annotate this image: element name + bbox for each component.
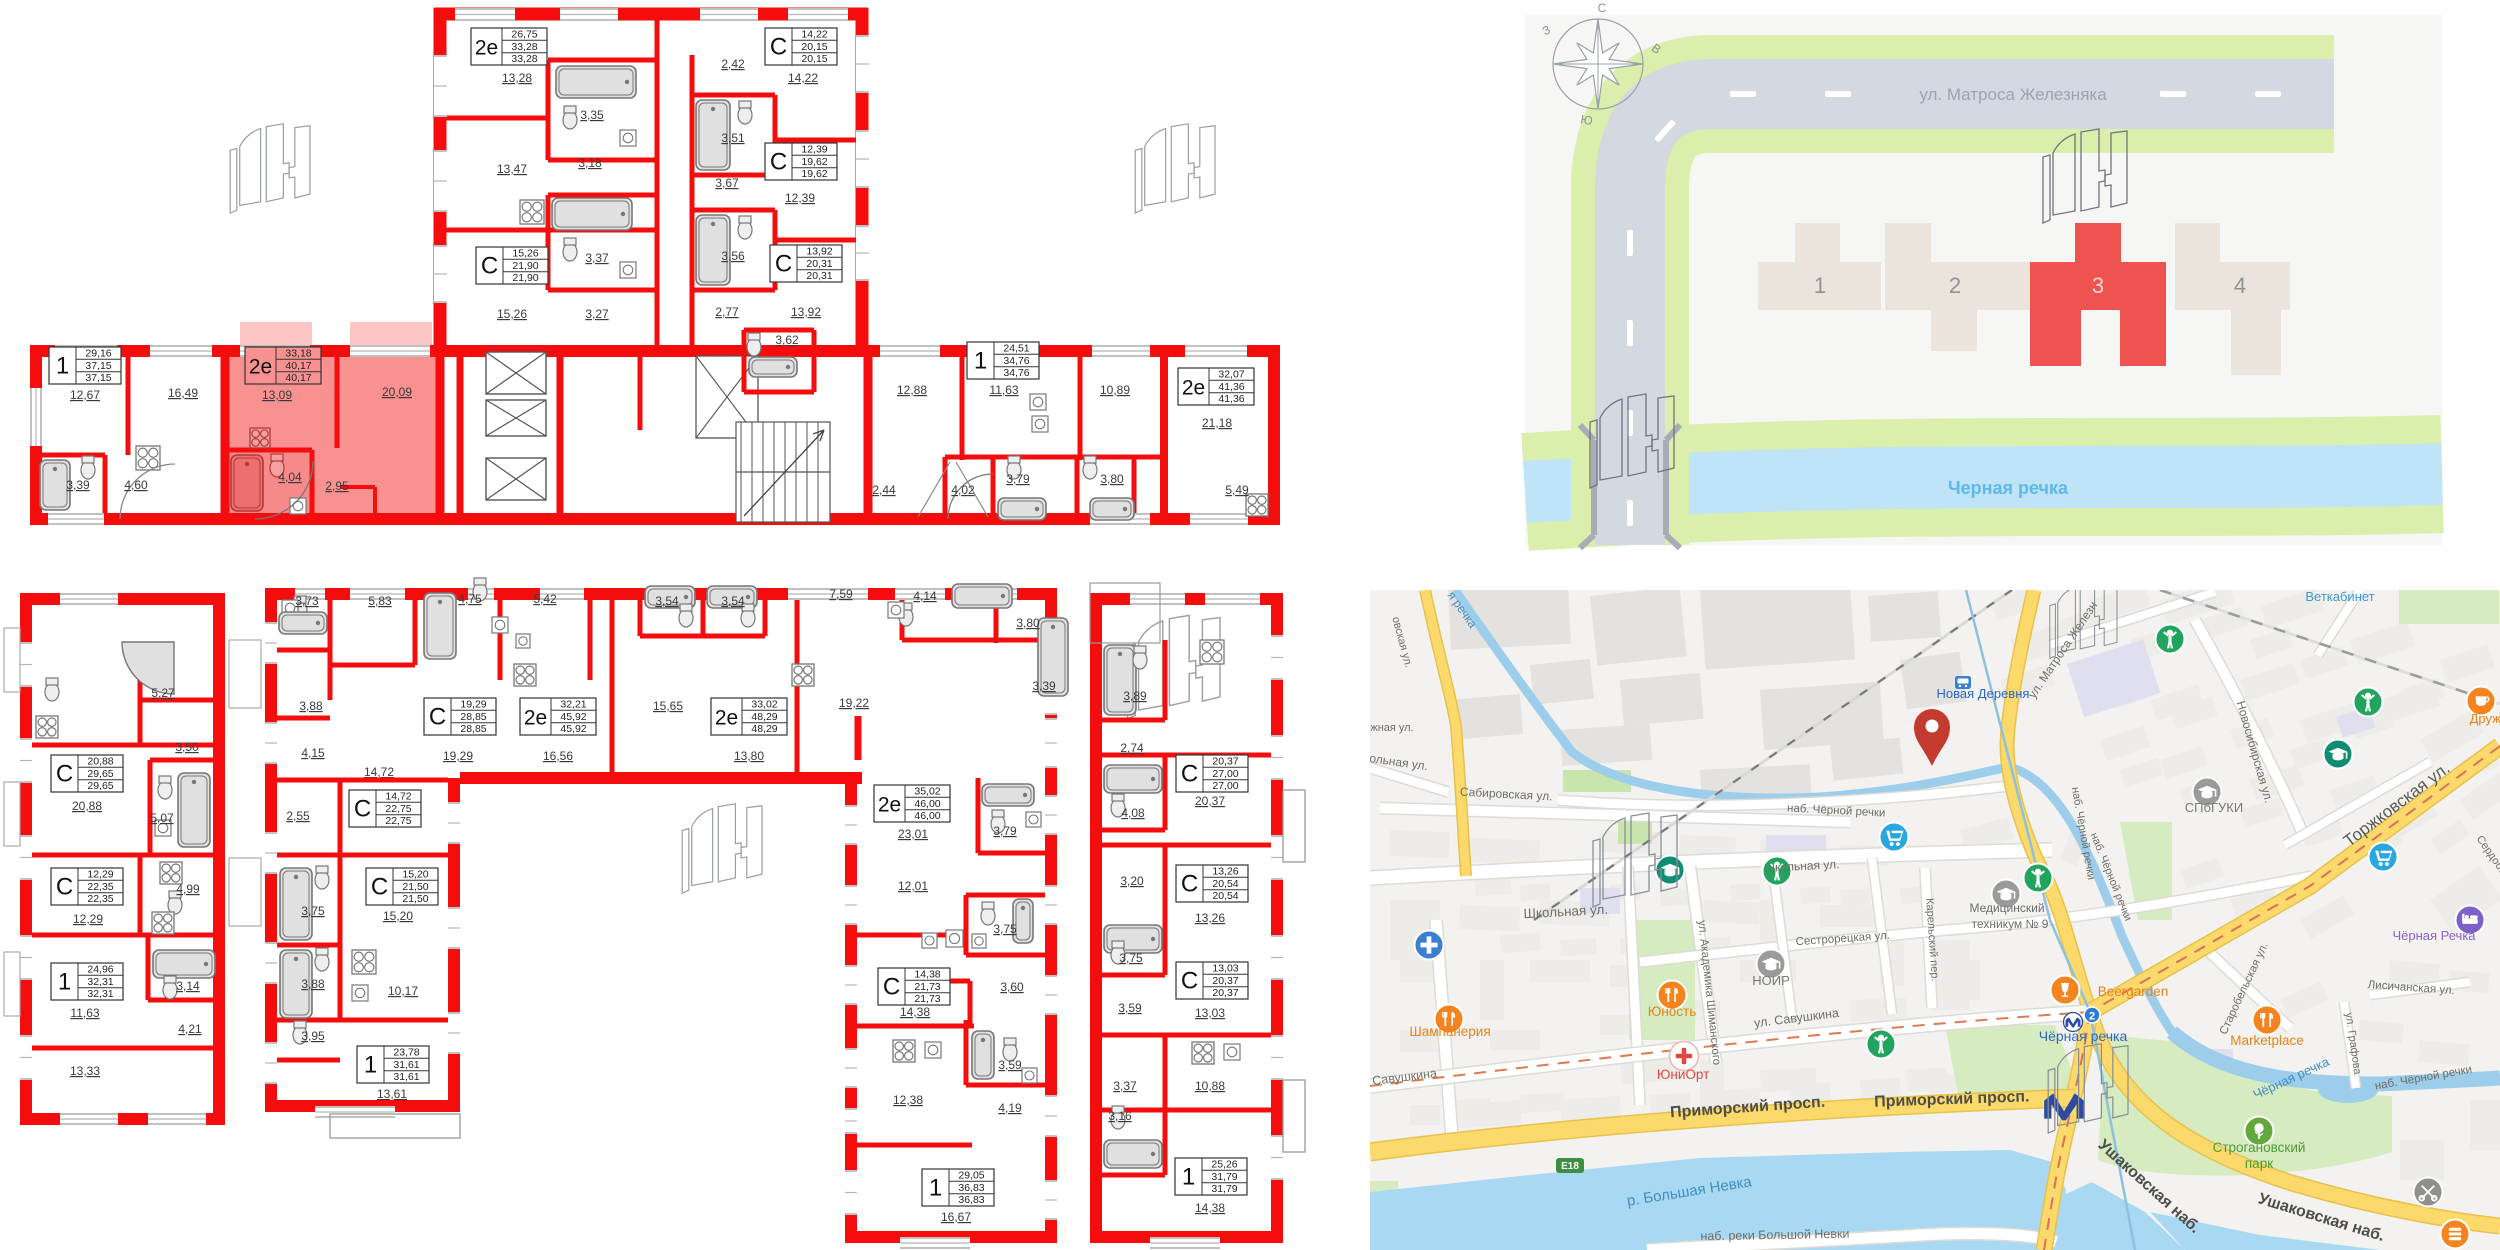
svg-text:НОИР: НОИР — [1752, 973, 1790, 988]
svg-text:жная ул.: жная ул. — [1370, 722, 1413, 734]
svg-text:3,59: 3,59 — [998, 1058, 1022, 1072]
svg-text:21,73: 21,73 — [914, 981, 940, 993]
svg-text:21,50: 21,50 — [402, 893, 428, 905]
svg-text:13,28: 13,28 — [502, 71, 532, 85]
svg-text:31,61: 31,61 — [393, 1059, 419, 1071]
svg-text:3,39: 3,39 — [1032, 679, 1056, 693]
svg-text:37,15: 37,15 — [85, 372, 111, 384]
svg-text:13,26: 13,26 — [1195, 911, 1225, 925]
svg-text:3,62: 3,62 — [775, 333, 799, 347]
svg-text:5,83: 5,83 — [368, 594, 392, 608]
svg-text:E18: E18 — [1561, 1161, 1579, 1172]
svg-text:20,88: 20,88 — [87, 756, 113, 768]
svg-text:Строгановский: Строгановский — [2213, 1140, 2306, 1155]
svg-text:29,16: 29,16 — [85, 348, 111, 360]
svg-text:15,26: 15,26 — [497, 307, 527, 321]
svg-text:С: С — [775, 251, 792, 278]
svg-text:1: 1 — [1814, 273, 1826, 298]
svg-text:19,62: 19,62 — [801, 156, 827, 168]
svg-text:40,17: 40,17 — [285, 360, 311, 372]
svg-text:22,75: 22,75 — [385, 803, 411, 815]
svg-text:3,79: 3,79 — [1006, 472, 1030, 486]
svg-text:ул. Матроса Железняка: ул. Матроса Железняка — [1919, 85, 2107, 104]
svg-text:3,27: 3,27 — [585, 307, 609, 321]
svg-text:Новая Деревня: Новая Деревня — [1937, 686, 2030, 701]
svg-text:19,29: 19,29 — [443, 749, 473, 763]
svg-text:1: 1 — [56, 353, 69, 380]
svg-text:наб. реки Большой Невки: наб. реки Большой Невки — [1700, 1227, 1849, 1244]
svg-text:21,73: 21,73 — [914, 993, 940, 1005]
svg-text:Чёрная Речка: Чёрная Речка — [2392, 928, 2476, 943]
svg-text:13,33: 13,33 — [70, 1064, 100, 1078]
svg-text:2е: 2е — [715, 707, 738, 730]
svg-text:22,35: 22,35 — [87, 881, 113, 893]
svg-text:5,27: 5,27 — [151, 686, 175, 700]
svg-text:19,62: 19,62 — [801, 168, 827, 180]
svg-text:Черная речка: Черная речка — [1948, 478, 2069, 498]
svg-text:10,89: 10,89 — [1100, 383, 1130, 397]
svg-text:3,59: 3,59 — [1118, 1001, 1142, 1015]
svg-text:34,76: 34,76 — [1003, 355, 1029, 367]
svg-text:3,80: 3,80 — [1100, 472, 1124, 486]
svg-text:3,39: 3,39 — [66, 478, 90, 492]
svg-text:3,60: 3,60 — [1000, 980, 1024, 994]
svg-text:34,76: 34,76 — [1003, 367, 1029, 379]
svg-text:31,61: 31,61 — [393, 1071, 419, 1083]
svg-text:41,36: 41,36 — [1218, 381, 1244, 393]
svg-text:3,75: 3,75 — [993, 922, 1017, 936]
svg-text:32,31: 32,31 — [87, 976, 113, 988]
svg-text:С: С — [56, 874, 73, 901]
svg-text:12,67: 12,67 — [70, 388, 100, 402]
svg-text:4,15: 4,15 — [301, 746, 325, 760]
svg-text:26,75: 26,75 — [511, 29, 537, 41]
svg-text:2,44: 2,44 — [872, 483, 896, 497]
svg-text:10,17: 10,17 — [388, 984, 418, 998]
svg-text:15,20: 15,20 — [402, 869, 428, 881]
svg-text:1: 1 — [1182, 1164, 1195, 1191]
svg-text:36,83: 36,83 — [958, 1182, 984, 1194]
svg-text:5,42: 5,42 — [533, 592, 557, 606]
svg-text:27,00: 27,00 — [1212, 780, 1238, 792]
svg-text:21,18: 21,18 — [1202, 416, 1232, 430]
svg-text:2е: 2е — [524, 707, 547, 730]
svg-text:4,19: 4,19 — [998, 1101, 1022, 1115]
svg-text:36,83: 36,83 — [958, 1194, 984, 1206]
svg-text:3,14: 3,14 — [176, 979, 200, 993]
svg-text:4,99: 4,99 — [176, 882, 200, 896]
svg-text:20,37: 20,37 — [1195, 794, 1225, 808]
svg-text:20,54: 20,54 — [1212, 890, 1238, 902]
svg-text:29,65: 29,65 — [87, 780, 113, 792]
svg-text:С: С — [770, 149, 787, 176]
svg-text:12,01: 12,01 — [898, 879, 928, 893]
svg-text:3,75: 3,75 — [301, 904, 325, 918]
svg-text:3,18: 3,18 — [578, 156, 602, 170]
svg-text:3,89: 3,89 — [1123, 689, 1147, 703]
svg-text:22,75: 22,75 — [385, 815, 411, 827]
svg-text:Веткабинет: Веткабинет — [2305, 589, 2374, 604]
svg-text:Чёрная речка: Чёрная речка — [2039, 1028, 2128, 1044]
svg-text:13,61: 13,61 — [377, 1087, 407, 1101]
svg-text:23,01: 23,01 — [898, 827, 928, 841]
svg-text:31,79: 31,79 — [1211, 1183, 1237, 1195]
svg-text:16,56: 16,56 — [543, 749, 573, 763]
svg-text:2е: 2е — [878, 794, 901, 817]
svg-text:3,51: 3,51 — [721, 131, 745, 145]
svg-text:16,49: 16,49 — [168, 386, 198, 400]
svg-text:2е: 2е — [249, 356, 272, 379]
svg-text:14,72: 14,72 — [385, 791, 411, 803]
svg-text:25,26: 25,26 — [1211, 1159, 1237, 1171]
svg-text:13,92: 13,92 — [806, 246, 832, 258]
svg-text:1: 1 — [364, 1052, 377, 1079]
svg-text:12,39: 12,39 — [785, 191, 815, 205]
svg-text:Beergarden: Beergarden — [2098, 984, 2169, 999]
svg-text:С: С — [354, 796, 371, 823]
svg-text:3,80: 3,80 — [1016, 616, 1040, 630]
svg-text:Дружб: Дружб — [2470, 711, 2500, 726]
svg-text:46,00: 46,00 — [914, 798, 940, 810]
svg-text:14,38: 14,38 — [900, 1005, 930, 1019]
svg-text:С: С — [883, 974, 900, 1001]
svg-text:13,47: 13,47 — [497, 162, 527, 176]
svg-text:20,37: 20,37 — [1212, 987, 1238, 999]
svg-text:Marketplace: Marketplace — [2230, 1033, 2304, 1048]
svg-text:14,22: 14,22 — [788, 71, 818, 85]
svg-text:41,36: 41,36 — [1218, 393, 1244, 405]
svg-text:20,37: 20,37 — [1212, 975, 1238, 987]
svg-text:С: С — [1181, 968, 1198, 995]
svg-text:3,37: 3,37 — [1113, 1079, 1137, 1093]
svg-text:3,56: 3,56 — [721, 249, 745, 263]
svg-text:4,02: 4,02 — [951, 483, 975, 497]
svg-text:12,39: 12,39 — [801, 144, 827, 156]
svg-text:3,50: 3,50 — [175, 740, 199, 754]
svg-text:С: С — [1181, 761, 1198, 788]
svg-text:14,72: 14,72 — [364, 765, 394, 779]
svg-text:20,37: 20,37 — [1212, 756, 1238, 768]
svg-text:Ю: Ю — [1580, 112, 1594, 128]
svg-text:14,22: 14,22 — [801, 29, 827, 41]
svg-text:20,31: 20,31 — [806, 270, 832, 282]
svg-text:СПбГУКИ: СПбГУКИ — [2185, 800, 2243, 815]
svg-text:13,09: 13,09 — [262, 388, 292, 402]
svg-text:4,08: 4,08 — [1121, 806, 1145, 820]
svg-text:1: 1 — [929, 1175, 942, 1202]
svg-text:2: 2 — [1949, 273, 1961, 298]
svg-text:20,15: 20,15 — [801, 53, 827, 65]
svg-text:2: 2 — [2089, 1011, 2095, 1023]
svg-text:4: 4 — [2234, 273, 2246, 298]
svg-text:32,31: 32,31 — [87, 988, 113, 1000]
svg-text:3,35: 3,35 — [580, 108, 604, 122]
svg-text:48,29: 48,29 — [751, 723, 777, 735]
svg-text:11,63: 11,63 — [989, 383, 1018, 397]
svg-text:техникум № 9: техникум № 9 — [1972, 917, 2049, 931]
svg-text:3,54: 3,54 — [655, 594, 679, 608]
svg-text:24,51: 24,51 — [1003, 343, 1029, 355]
svg-text:Шампанерия: Шампанерия — [1409, 1024, 1490, 1039]
svg-text:4,04: 4,04 — [278, 470, 302, 484]
svg-text:13,80: 13,80 — [734, 749, 764, 763]
svg-text:3: 3 — [2092, 273, 2104, 298]
svg-text:1: 1 — [58, 969, 71, 996]
svg-text:28,85: 28,85 — [460, 723, 486, 735]
svg-text:28,85: 28,85 — [460, 711, 486, 723]
svg-text:12,38: 12,38 — [893, 1093, 923, 1107]
svg-text:24,96: 24,96 — [87, 964, 113, 976]
svg-text:20,15: 20,15 — [801, 41, 827, 53]
svg-text:12,29: 12,29 — [73, 912, 103, 926]
svg-text:15,26: 15,26 — [512, 248, 538, 260]
svg-text:3,95: 3,95 — [301, 1029, 325, 1043]
svg-text:33,28: 33,28 — [511, 53, 537, 65]
svg-text:2,42: 2,42 — [721, 57, 745, 71]
svg-text:21,90: 21,90 — [512, 272, 538, 284]
svg-text:29,65: 29,65 — [87, 768, 113, 780]
svg-text:3,79: 3,79 — [993, 824, 1017, 838]
svg-text:20,88: 20,88 — [72, 799, 102, 813]
svg-text:4,60: 4,60 — [124, 478, 148, 492]
svg-text:14,38: 14,38 — [1195, 1201, 1225, 1215]
svg-text:13,03: 13,03 — [1212, 963, 1238, 975]
svg-text:2,77: 2,77 — [715, 305, 739, 319]
svg-text:20,54: 20,54 — [1212, 878, 1238, 890]
svg-text:33,28: 33,28 — [511, 41, 537, 53]
svg-text:19,22: 19,22 — [839, 696, 869, 710]
svg-text:Юность: Юность — [1648, 1004, 1697, 1019]
svg-text:32,21: 32,21 — [560, 699, 586, 711]
svg-text:С: С — [1181, 871, 1198, 898]
svg-text:2,55: 2,55 — [286, 809, 310, 823]
svg-text:2е: 2е — [475, 37, 498, 60]
svg-text:3,54: 3,54 — [721, 594, 745, 608]
svg-text:33,02: 33,02 — [751, 699, 777, 711]
svg-text:3,73: 3,73 — [295, 594, 319, 608]
svg-text:5,07: 5,07 — [150, 811, 174, 825]
svg-text:15,20: 15,20 — [383, 909, 413, 923]
svg-text:С: С — [481, 253, 498, 280]
svg-text:3,20: 3,20 — [1120, 874, 1144, 888]
svg-text:парк: парк — [2245, 1156, 2273, 1171]
svg-text:35,02: 35,02 — [914, 786, 940, 798]
svg-text:14,38: 14,38 — [914, 969, 940, 981]
svg-text:С: С — [371, 874, 388, 901]
svg-text:2,74: 2,74 — [1120, 741, 1144, 755]
svg-text:2,95: 2,95 — [325, 479, 349, 493]
svg-text:4,14: 4,14 — [913, 589, 937, 603]
svg-text:13,03: 13,03 — [1195, 1006, 1225, 1020]
svg-text:15,65: 15,65 — [653, 699, 683, 713]
svg-text:С: С — [770, 34, 787, 61]
svg-text:23,78: 23,78 — [393, 1047, 419, 1059]
svg-text:29,05: 29,05 — [958, 1170, 984, 1182]
svg-text:45,92: 45,92 — [560, 711, 586, 723]
svg-text:27,00: 27,00 — [1212, 768, 1238, 780]
svg-text:21,50: 21,50 — [402, 881, 428, 893]
svg-text:33,18: 33,18 — [285, 348, 311, 360]
svg-text:45,92: 45,92 — [560, 723, 586, 735]
svg-text:4,75: 4,75 — [458, 592, 482, 606]
svg-text:46,00: 46,00 — [914, 810, 940, 822]
svg-text:1: 1 — [974, 348, 987, 375]
svg-text:5,49: 5,49 — [1225, 483, 1249, 497]
svg-text:4,21: 4,21 — [178, 1022, 202, 1036]
svg-text:31,79: 31,79 — [1211, 1171, 1237, 1183]
svg-text:32,07: 32,07 — [1218, 369, 1244, 381]
svg-text:ЮниОрт: ЮниОрт — [1657, 1067, 1710, 1082]
svg-text:12,88: 12,88 — [897, 383, 927, 397]
svg-text:12,29: 12,29 — [87, 869, 113, 881]
svg-text:22,35: 22,35 — [87, 893, 113, 905]
svg-text:20,31: 20,31 — [806, 258, 832, 270]
svg-text:13,26: 13,26 — [1212, 866, 1238, 878]
svg-text:3,88: 3,88 — [299, 699, 323, 713]
svg-text:19,29: 19,29 — [460, 699, 486, 711]
svg-text:40,17: 40,17 — [285, 372, 311, 384]
svg-text:3,75: 3,75 — [1119, 951, 1143, 965]
svg-text:10,88: 10,88 — [1195, 1079, 1225, 1093]
svg-text:С: С — [56, 761, 73, 788]
svg-text:Медицинский: Медицинский — [1969, 901, 2044, 915]
svg-text:2е: 2е — [1182, 377, 1205, 400]
svg-text:16,67: 16,67 — [941, 1210, 971, 1224]
svg-text:3,16: 3,16 — [1108, 1109, 1132, 1123]
svg-text:20,09: 20,09 — [382, 385, 412, 399]
svg-text:3,37: 3,37 — [585, 251, 609, 265]
svg-text:11,63: 11,63 — [70, 1006, 99, 1020]
svg-text:С: С — [429, 704, 446, 731]
svg-text:13,92: 13,92 — [791, 305, 821, 319]
svg-text:3,88: 3,88 — [301, 977, 325, 991]
svg-text:37,15: 37,15 — [85, 360, 111, 372]
svg-text:3,67: 3,67 — [715, 176, 739, 190]
svg-text:48,29: 48,29 — [751, 711, 777, 723]
svg-text:С: С — [1598, 1, 1607, 15]
svg-text:21,90: 21,90 — [512, 260, 538, 272]
svg-text:7,59: 7,59 — [829, 587, 853, 601]
